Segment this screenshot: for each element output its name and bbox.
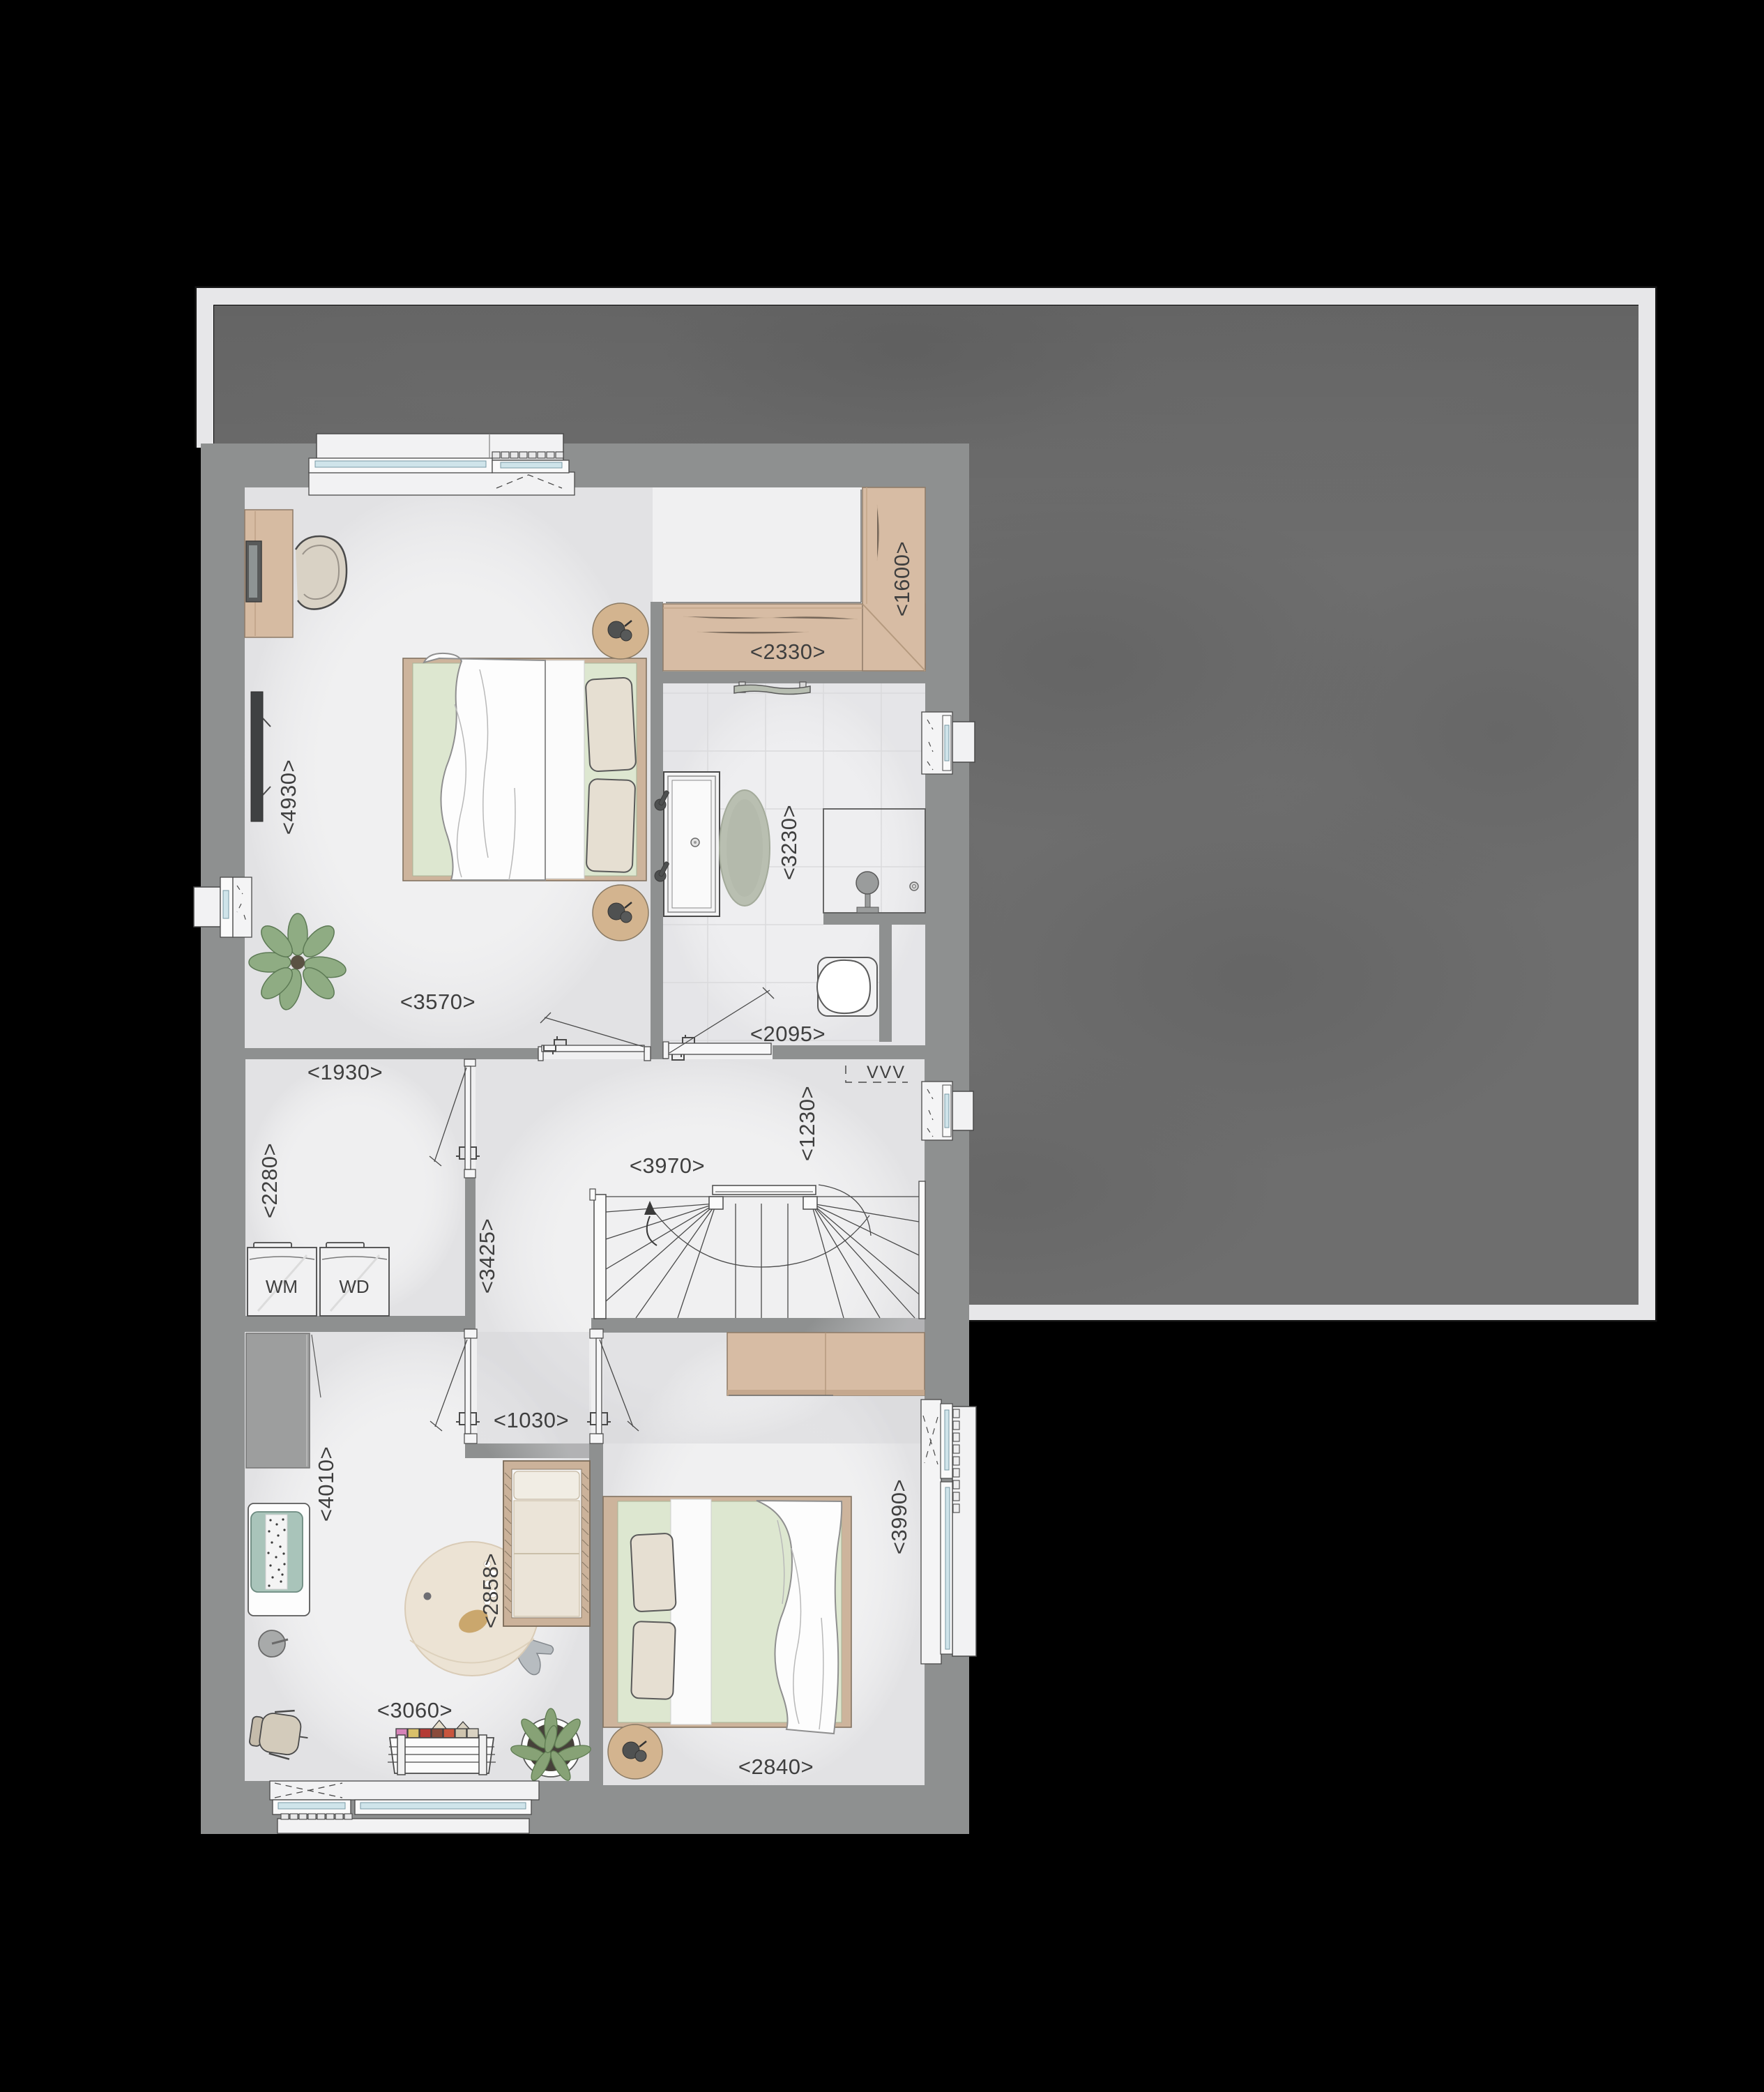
- svg-text:<4010>: <4010>: [314, 1446, 338, 1522]
- svg-text:<3425>: <3425>: [475, 1218, 499, 1294]
- svg-text:<2280>: <2280>: [257, 1143, 282, 1218]
- svg-text:<1230>: <1230>: [795, 1086, 819, 1161]
- svg-text:<3230>: <3230>: [777, 805, 801, 880]
- svg-text:<2095>: <2095>: [750, 1022, 826, 1046]
- svg-text:<3970>: <3970>: [630, 1153, 705, 1178]
- svg-text:WM: WM: [266, 1276, 298, 1297]
- svg-text:<3570>: <3570>: [400, 990, 476, 1014]
- svg-text:<1930>: <1930>: [307, 1060, 383, 1084]
- svg-text:<1030>: <1030>: [494, 1408, 569, 1432]
- svg-text:VVV: VVV: [867, 1063, 906, 1082]
- svg-text:<4930>: <4930>: [276, 759, 301, 835]
- svg-text:<3990>: <3990>: [887, 1479, 911, 1554]
- svg-text:<1600>: <1600>: [890, 541, 914, 616]
- svg-text:<2840>: <2840>: [738, 1754, 814, 1779]
- svg-text:<2858>: <2858>: [478, 1553, 503, 1628]
- svg-text:<3060>: <3060>: [377, 1698, 453, 1722]
- svg-text:WD: WD: [339, 1276, 369, 1297]
- svg-text:<2330>: <2330>: [750, 639, 826, 664]
